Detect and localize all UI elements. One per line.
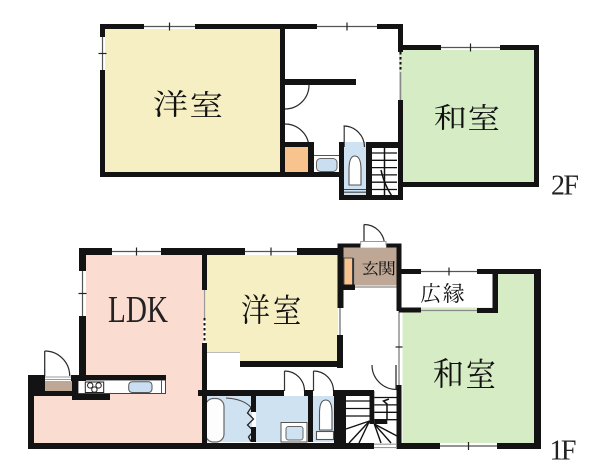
svg-text:1F: 1F [550, 436, 577, 466]
svg-text:LDK: LDK [108, 289, 168, 331]
svg-text:2F: 2F [551, 171, 579, 202]
